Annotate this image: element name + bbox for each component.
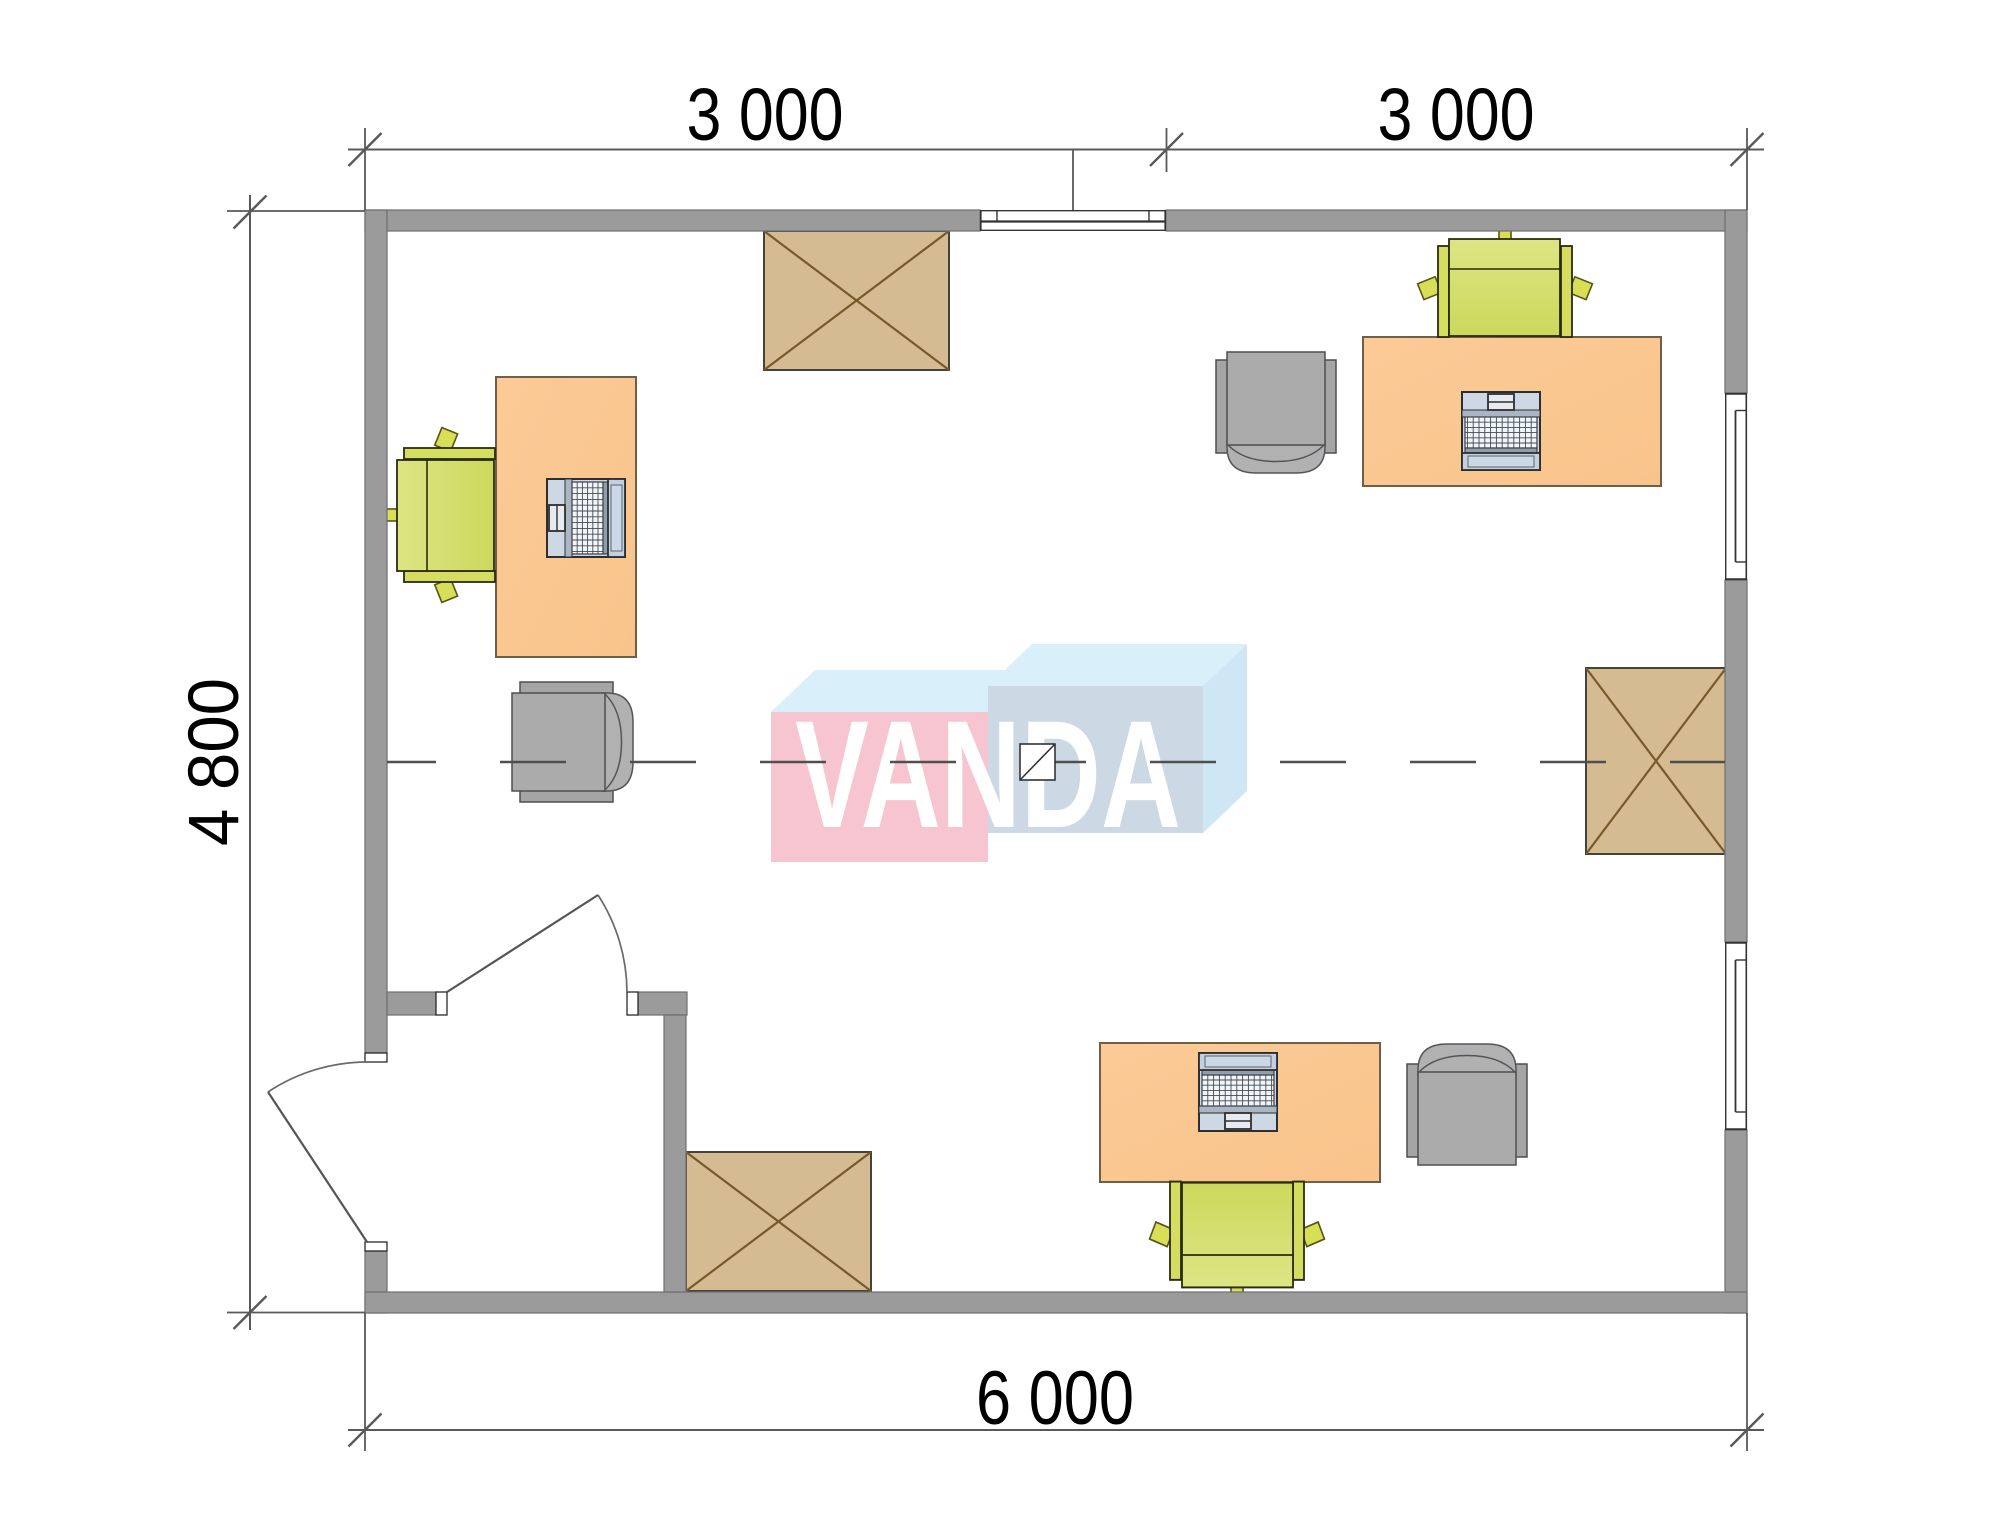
svg-text:VANDA: VANDA — [795, 689, 1181, 860]
svg-text:3 000: 3 000 — [1378, 73, 1535, 156]
svg-text:6 000: 6 000 — [976, 1356, 1134, 1441]
svg-text:4 800: 4 800 — [175, 678, 254, 846]
svg-text:3 000: 3 000 — [687, 73, 844, 156]
